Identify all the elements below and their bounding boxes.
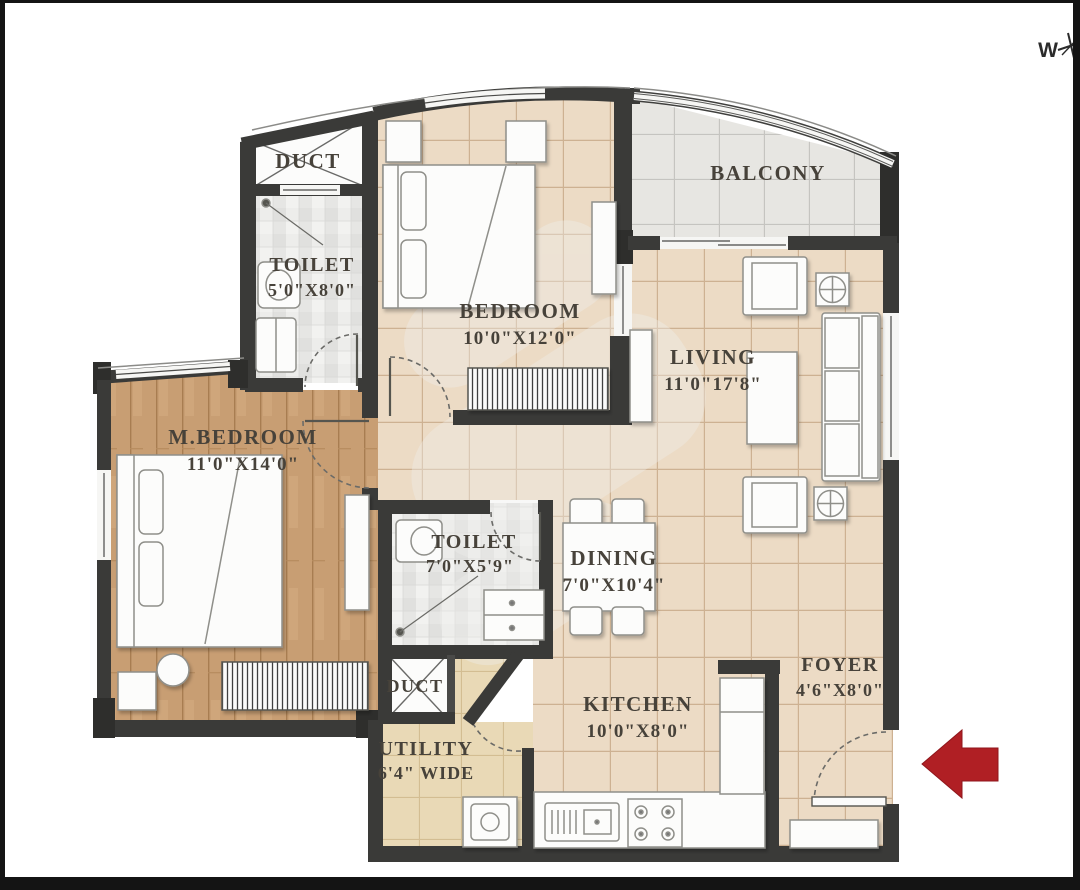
dining-label: DINING — [570, 546, 657, 570]
dining-chair — [570, 607, 602, 635]
toilet-mid-dims: 7'0"X5'9" — [426, 556, 514, 576]
bedroom-side-table — [386, 121, 421, 162]
refrigerator — [720, 678, 764, 794]
master-bedroom-dims: 11'0"X14'0" — [187, 454, 299, 475]
bedroom-bed — [383, 165, 535, 308]
kitchen-dims: 10'0"X8'0" — [587, 721, 690, 742]
kitchen-sink — [545, 803, 619, 841]
duct-top-label: DUCT — [275, 149, 341, 173]
side-table-round — [814, 487, 847, 520]
tv-unit — [630, 330, 652, 422]
master-bedside-table — [157, 654, 189, 686]
armchair — [743, 257, 807, 315]
master-wall-dresser — [345, 495, 369, 610]
armchair — [743, 477, 807, 533]
bedroom-label: BEDROOM — [459, 299, 580, 323]
toilet-top-label: TOILET — [269, 254, 354, 276]
utility-label: UTILITY — [379, 738, 474, 760]
bedroom-dims: 10'0"X12'0" — [463, 328, 576, 349]
washing-machine — [463, 797, 517, 847]
entrance-door-leaf — [812, 797, 886, 806]
sofa — [822, 313, 880, 481]
toilet-top-dims: 5'0"X8'0" — [268, 280, 356, 300]
living-dims: 11'0"17'8" — [664, 374, 762, 395]
balcony-label: BALCONY — [710, 161, 826, 185]
bedroom-wardrobe — [468, 368, 608, 410]
master-wardrobe — [222, 662, 368, 710]
dining-dims: 7'0"X10'4" — [563, 575, 666, 596]
utility-dims: 6'4" WIDE — [378, 763, 474, 783]
master-bed — [117, 455, 282, 647]
bedroom-side-table — [506, 121, 546, 162]
floor-plan-page: DUCT TOILET 5'0"X8'0" BEDROOM 10'0"X12'0… — [0, 0, 1080, 890]
foyer-dims: 4'6"X8'0" — [796, 680, 884, 700]
kitchen-label: KITCHEN — [583, 692, 693, 716]
master-dresser — [118, 672, 156, 710]
toilet-mid-label: TOILET — [431, 531, 516, 553]
floor-plan-drawing: DUCT TOILET 5'0"X8'0" BEDROOM 10'0"X12'0… — [0, 0, 1080, 890]
foyer-shoe-unit — [790, 820, 878, 848]
hob — [628, 799, 682, 847]
bedroom-dresser — [592, 202, 616, 294]
living-label: LIVING — [670, 345, 756, 369]
side-table-round — [816, 273, 849, 306]
utility-fittings — [463, 797, 517, 847]
dining-chair — [612, 607, 644, 635]
duct-bottom-label: DUCT — [386, 676, 443, 696]
master-bedroom-label: M.BEDROOM — [168, 425, 317, 449]
compass-west-label: W — [1038, 39, 1058, 62]
foyer-label: FOYER — [801, 654, 879, 676]
